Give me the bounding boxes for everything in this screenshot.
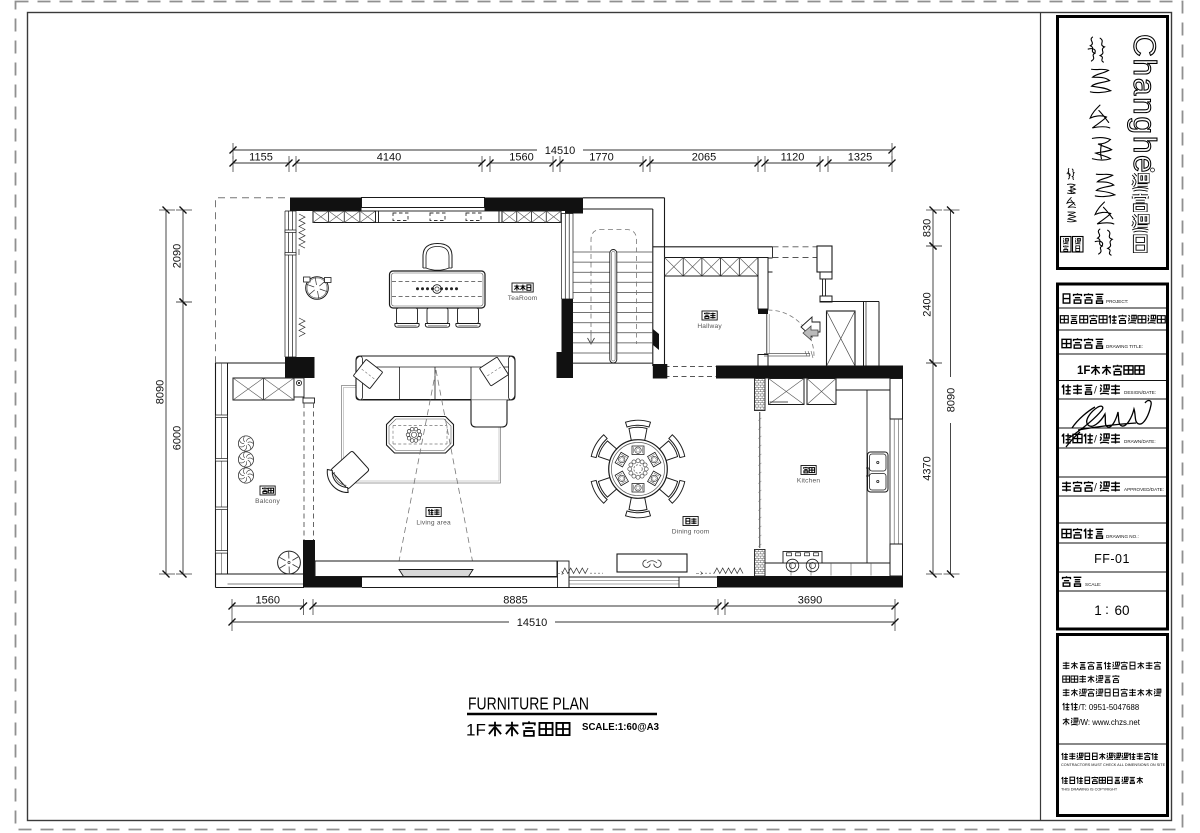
svg-text:2400: 2400 — [922, 292, 934, 316]
svg-text:1770: 1770 — [589, 152, 613, 164]
svg-text:4140: 4140 — [377, 152, 401, 164]
svg-text:CONTRACTORS MUST CHECK ALL DIM: CONTRACTORS MUST CHECK ALL DIMENSIONS ON… — [1061, 763, 1166, 767]
svg-text:60: 60 — [1114, 603, 1129, 618]
svg-text:Living area: Living area — [416, 519, 451, 526]
svg-text:Hallway: Hallway — [697, 323, 722, 330]
svg-text:PROJECT:: PROJECT: — [1106, 299, 1128, 304]
svg-text:14510: 14510 — [545, 145, 576, 157]
svg-text:Kitchen: Kitchen — [797, 477, 821, 484]
svg-text:Dining room: Dining room — [672, 528, 710, 535]
svg-text:DRAWN/DATE:: DRAWN/DATE: — [1124, 439, 1156, 444]
svg-text:6000: 6000 — [172, 426, 184, 450]
svg-text:2065: 2065 — [692, 152, 716, 164]
svg-text:1560: 1560 — [256, 595, 280, 607]
svg-text:TeaRoom: TeaRoom — [508, 295, 538, 302]
svg-text:SCALE:: SCALE: — [1085, 582, 1101, 587]
svg-text:FF-01: FF-01 — [1094, 552, 1130, 566]
svg-text:1325: 1325 — [848, 152, 872, 164]
svg-text:DRAWING TITLE:: DRAWING TITLE: — [1106, 344, 1143, 349]
svg-text:1F: 1F — [466, 721, 486, 740]
svg-text:THIS DRAWING IS COPYRIGHT: THIS DRAWING IS COPYRIGHT — [1061, 788, 1118, 792]
svg-text:1F: 1F — [1077, 365, 1090, 377]
svg-text:830: 830 — [922, 219, 934, 237]
svg-text:/W: www.chzs.net: /W: www.chzs.net — [1079, 718, 1141, 727]
svg-text:Changhe: Changhe — [1127, 34, 1163, 174]
svg-text:1120: 1120 — [781, 152, 805, 164]
svg-text:DRAWING NO.:: DRAWING NO.: — [1106, 534, 1139, 539]
svg-text:/: / — [1094, 434, 1097, 446]
svg-text:8885: 8885 — [503, 595, 527, 607]
svg-text:1155: 1155 — [249, 152, 273, 164]
svg-text:APPROVED/DATE:: APPROVED/DATE: — [1124, 487, 1164, 492]
svg-text:4370: 4370 — [922, 456, 934, 480]
svg-text:3690: 3690 — [798, 595, 822, 607]
svg-text:8090: 8090 — [946, 388, 958, 412]
svg-text:Balcony: Balcony — [255, 498, 280, 505]
svg-text:FURNITURE PLAN: FURNITURE PLAN — [468, 694, 589, 714]
svg-text:/: / — [1094, 385, 1097, 397]
svg-text:/T: 0951-5047688: /T: 0951-5047688 — [1079, 703, 1140, 712]
svg-text:1560: 1560 — [509, 152, 533, 164]
svg-text::: : — [1105, 602, 1109, 617]
svg-text:1: 1 — [1094, 603, 1102, 618]
svg-text:2090: 2090 — [172, 244, 184, 268]
svg-text:DESIGN/DATE:: DESIGN/DATE: — [1124, 390, 1156, 395]
svg-text:SCALE:1:60@A3: SCALE:1:60@A3 — [582, 721, 659, 733]
svg-text:/: / — [1094, 482, 1097, 494]
svg-text:8090: 8090 — [155, 380, 167, 404]
svg-text:14510: 14510 — [517, 617, 548, 629]
